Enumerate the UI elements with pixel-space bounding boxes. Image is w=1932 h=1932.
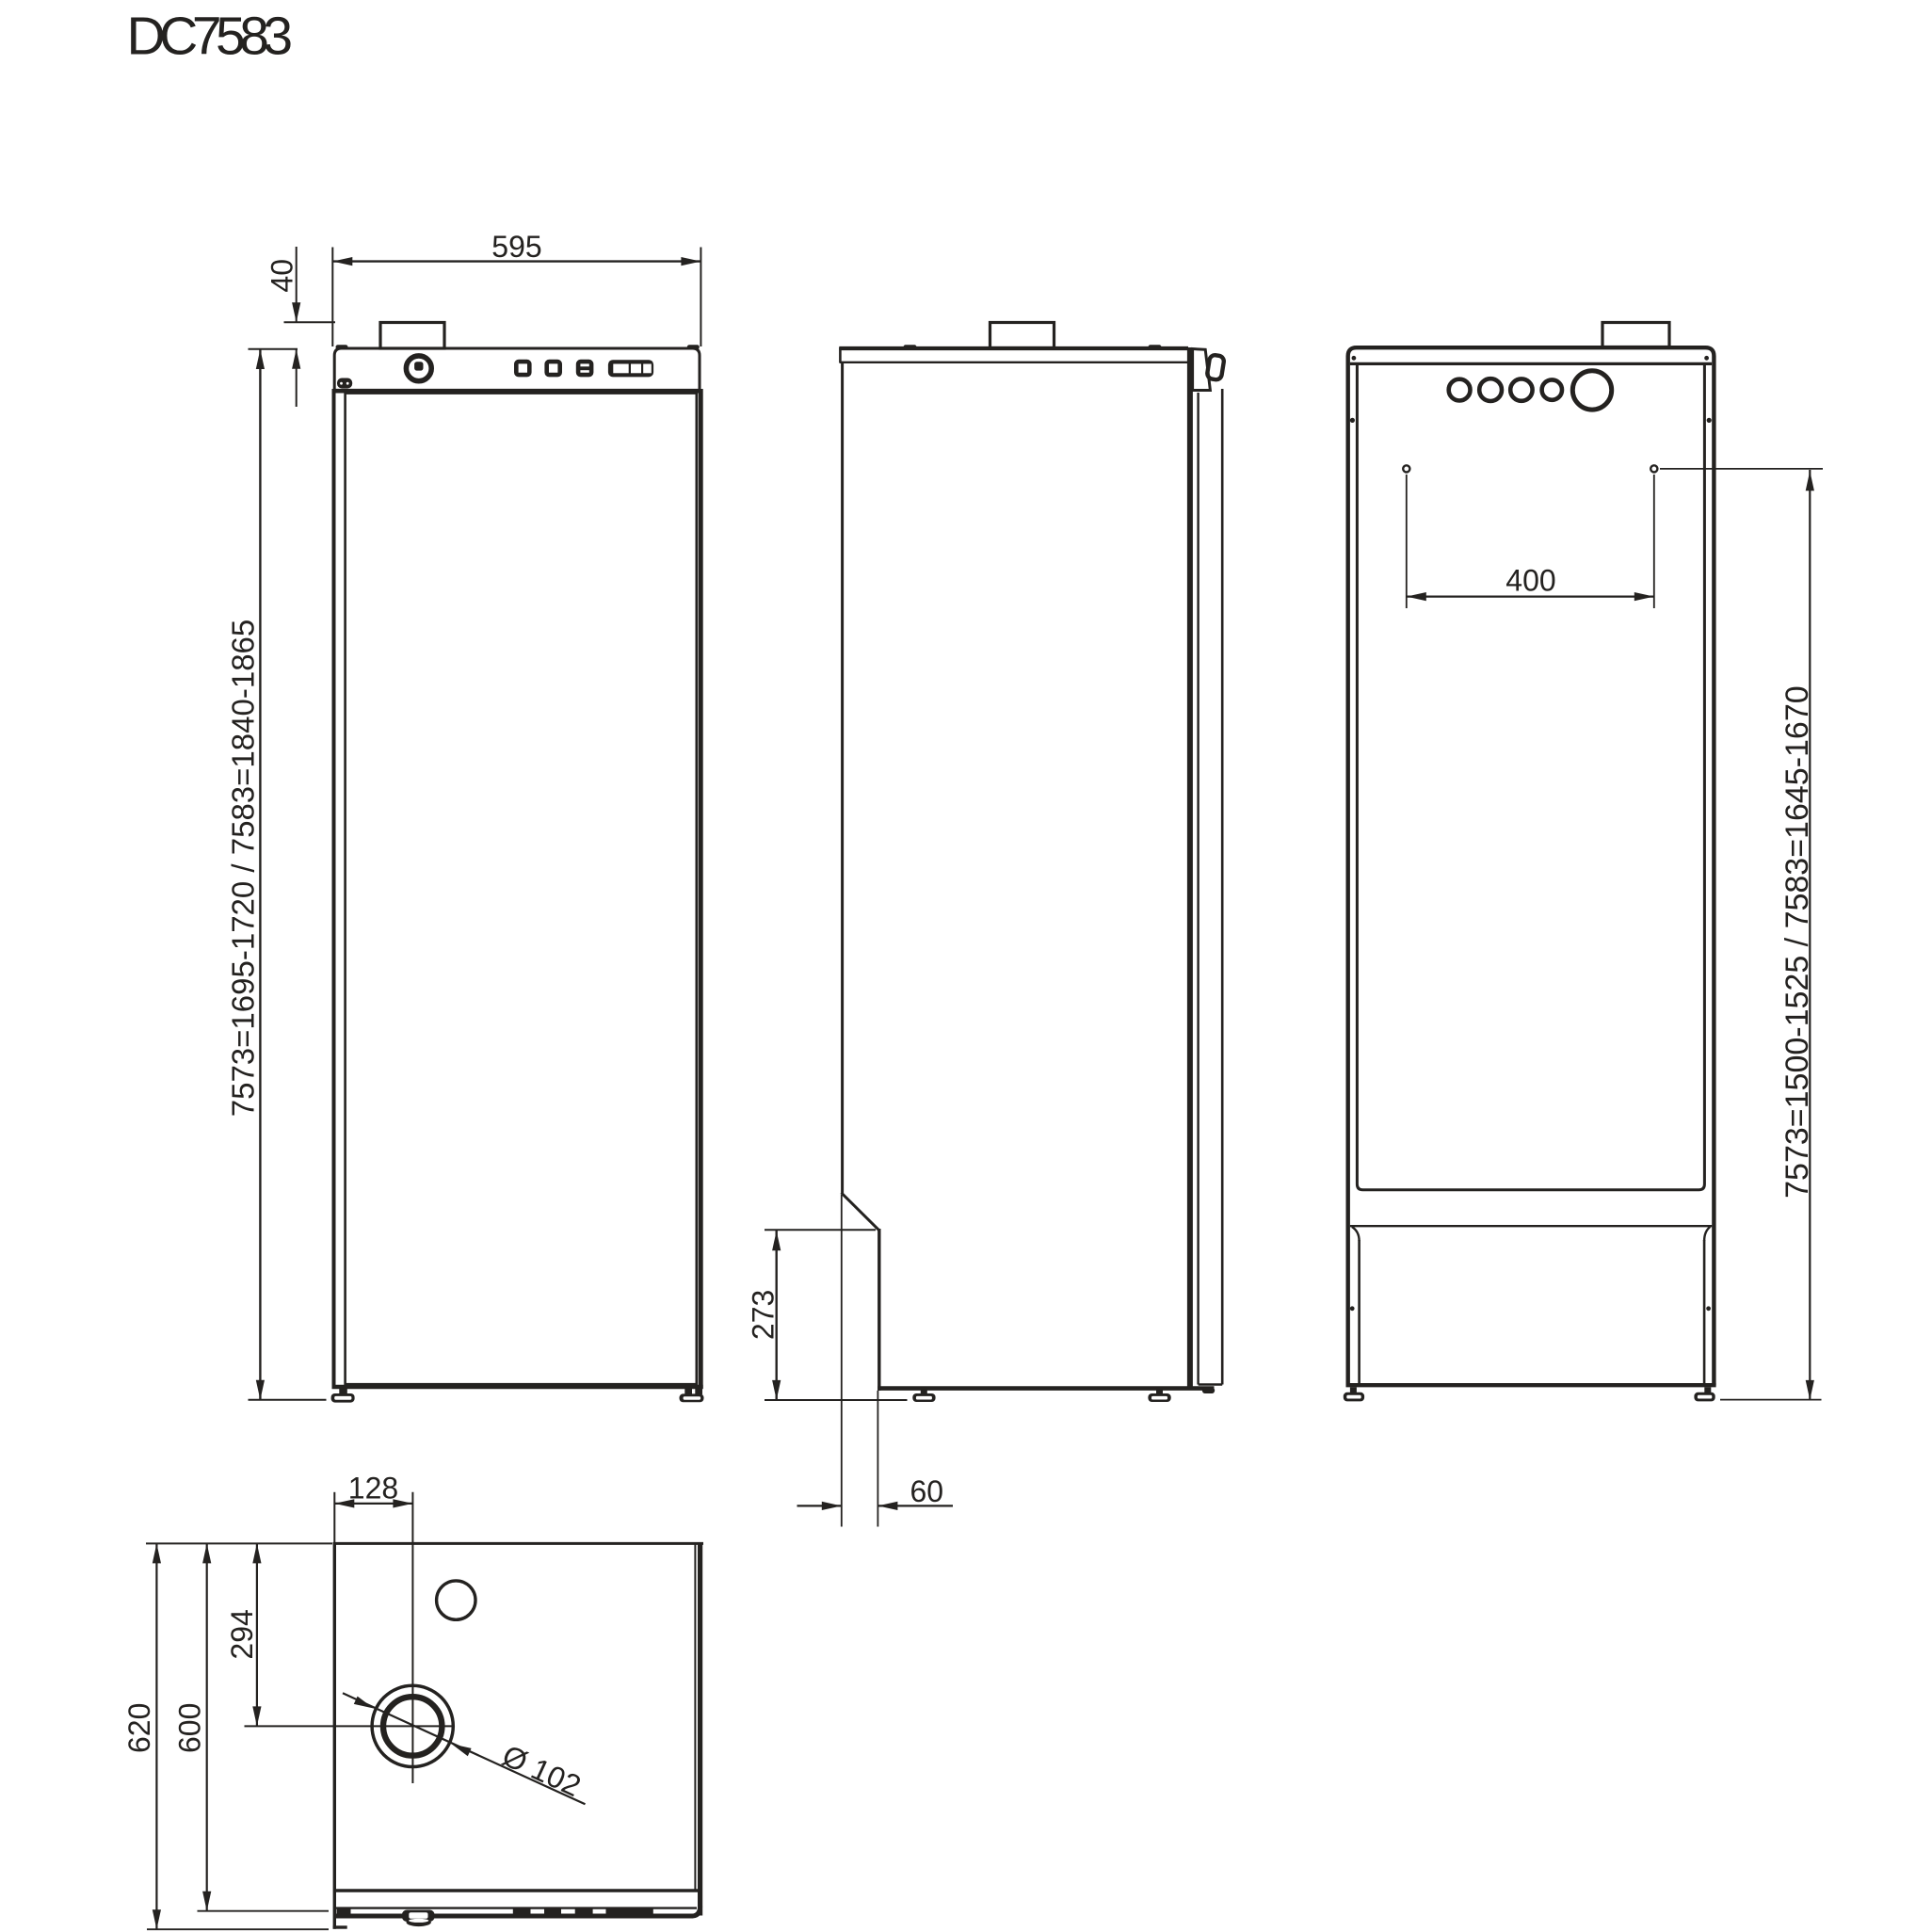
svg-text:128: 128 — [348, 1472, 398, 1505]
svg-text:600: 600 — [172, 1703, 206, 1753]
svg-text:40: 40 — [266, 259, 299, 293]
svg-text:620: 620 — [122, 1703, 156, 1753]
svg-text:60: 60 — [910, 1474, 944, 1508]
svg-text:294: 294 — [225, 1609, 259, 1659]
svg-text:400: 400 — [1505, 564, 1555, 598]
svg-text:DC7583: DC7583 — [127, 7, 292, 67]
svg-text:595: 595 — [491, 230, 541, 264]
svg-text:7573=1500-1525 / 7583=1645-167: 7573=1500-1525 / 7583=1645-1670 — [1779, 685, 1815, 1199]
svg-text:273: 273 — [747, 1290, 781, 1340]
svg-text:7573=1695-1720 / 7583=1840-186: 7573=1695-1720 / 7583=1840-1865 — [226, 620, 261, 1118]
